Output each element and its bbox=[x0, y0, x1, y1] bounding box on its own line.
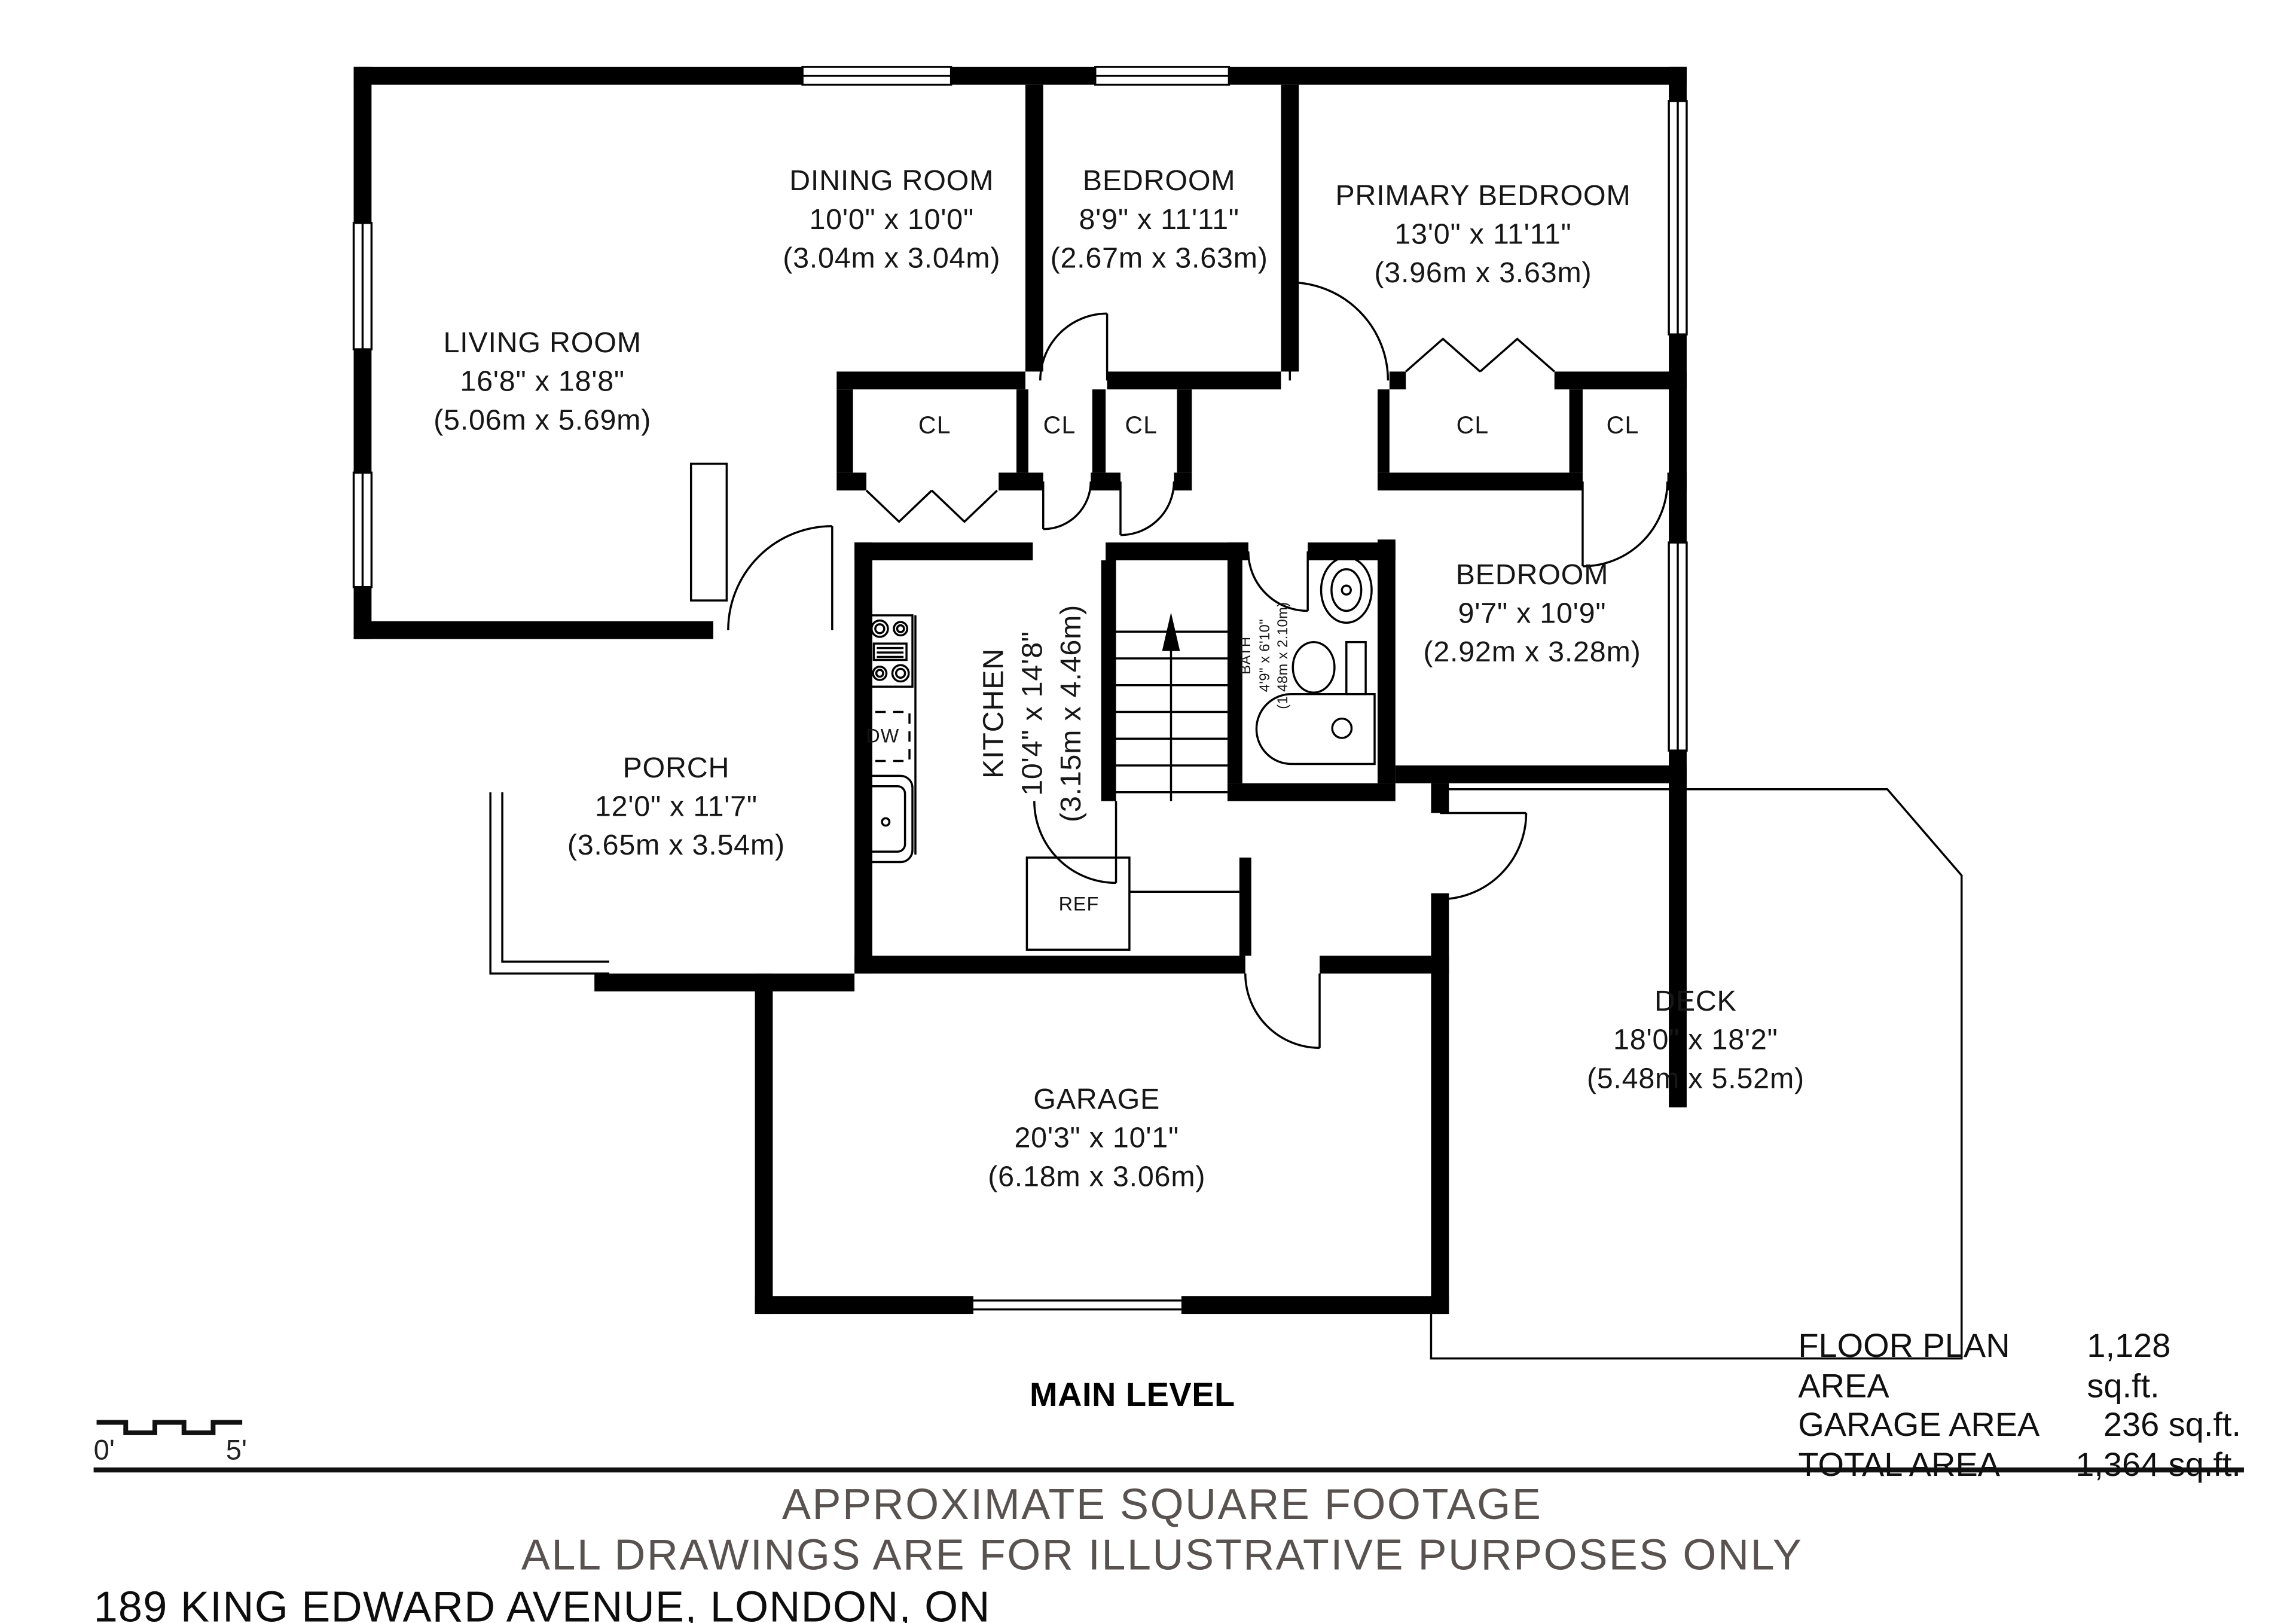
window-icon bbox=[354, 223, 372, 349]
window-icon bbox=[354, 472, 372, 587]
refrigerator-label: REF bbox=[1059, 892, 1100, 914]
window-icon bbox=[802, 67, 951, 85]
level-label: MAIN LEVEL bbox=[1030, 1376, 1235, 1415]
window-icon bbox=[1095, 67, 1229, 85]
dishwasher-label: DW bbox=[866, 725, 899, 747]
room-label-bedroom-right: BEDROOM9'7" x 10'9"(2.92m x 3.28m) bbox=[1423, 556, 1641, 672]
window-icon bbox=[1669, 101, 1687, 334]
bifold-door-icon bbox=[866, 490, 997, 521]
room-label-porch: PORCH12'0" x 11'7"(3.65m x 3.54m) bbox=[567, 749, 785, 865]
disclaimer-line-1: APPROXIMATE SQUARE FOOTAGE bbox=[782, 1482, 1542, 1531]
bath-sink-icon bbox=[1321, 557, 1372, 623]
room-label-kitchen: KITCHEN10'4" x 14'8"(3.15m x 4.46m) bbox=[975, 605, 1091, 822]
area-summary: FLOOR PLAN AREA 1,128 sq.ft. GARAGE AREA… bbox=[1798, 1327, 2241, 1484]
closet-label: CL bbox=[1457, 413, 1489, 441]
disclaimer-line-2: ALL DRAWINGS ARE FOR ILLUSTRATIVE PURPOS… bbox=[521, 1532, 1803, 1581]
closet-label: CL bbox=[918, 413, 951, 441]
scale-end-label: 5' bbox=[226, 1436, 247, 1469]
window-icon bbox=[1669, 542, 1687, 751]
room-label-bath: BATH4'9" x 6'10"(1.48m x 2.10m) bbox=[1238, 602, 1294, 709]
room-label-bedroom-top: BEDROOM8'9" x 11'11"(2.67m x 3.63m) bbox=[1051, 162, 1268, 278]
room-label-living-room: LIVING ROOM16'8" x 18'8"(5.06m x 5.69m) bbox=[433, 324, 651, 440]
room-label-primary-bedroom: PRIMARY BEDROOM13'0" x 11'11"(3.96m x 3.… bbox=[1335, 177, 1631, 293]
property-address: 189 KING EDWARD AVENUE, LONDON, ON bbox=[94, 1584, 991, 1623]
scale-bar bbox=[97, 1423, 243, 1433]
room-label-dining-room: DINING ROOM10'0" x 10'0"(3.04m x 3.04m) bbox=[783, 162, 1000, 278]
room-label-deck: DECK18'0" x 18'2"(5.48m x 5.52m) bbox=[1587, 983, 1805, 1099]
floor-plan-page: LIVING ROOM16'8" x 18'8"(5.06m x 5.69m) … bbox=[0, 0, 2296, 1623]
closet-label: CL bbox=[1125, 413, 1158, 441]
chimney bbox=[691, 463, 727, 600]
summary-row: GARAGE AREA 236 sq.ft. bbox=[1798, 1406, 2241, 1445]
summary-row: FLOOR PLAN AREA 1,128 sq.ft. bbox=[1798, 1327, 2241, 1406]
closet-label: CL bbox=[1607, 413, 1639, 441]
closet-label: CL bbox=[1043, 413, 1076, 441]
room-label-garage: GARAGE20'3" x 10'1"(6.18m x 3.06m) bbox=[988, 1081, 1205, 1197]
scale-start-label: 0' bbox=[94, 1436, 115, 1469]
garage-door-icon bbox=[973, 1301, 1181, 1310]
summary-row: TOTAL AREA 1,364 sq.ft. bbox=[1798, 1445, 2241, 1485]
stairs-icon bbox=[1116, 612, 1228, 801]
toilet-icon bbox=[1347, 642, 1366, 694]
bifold-door-icon bbox=[1406, 339, 1555, 372]
